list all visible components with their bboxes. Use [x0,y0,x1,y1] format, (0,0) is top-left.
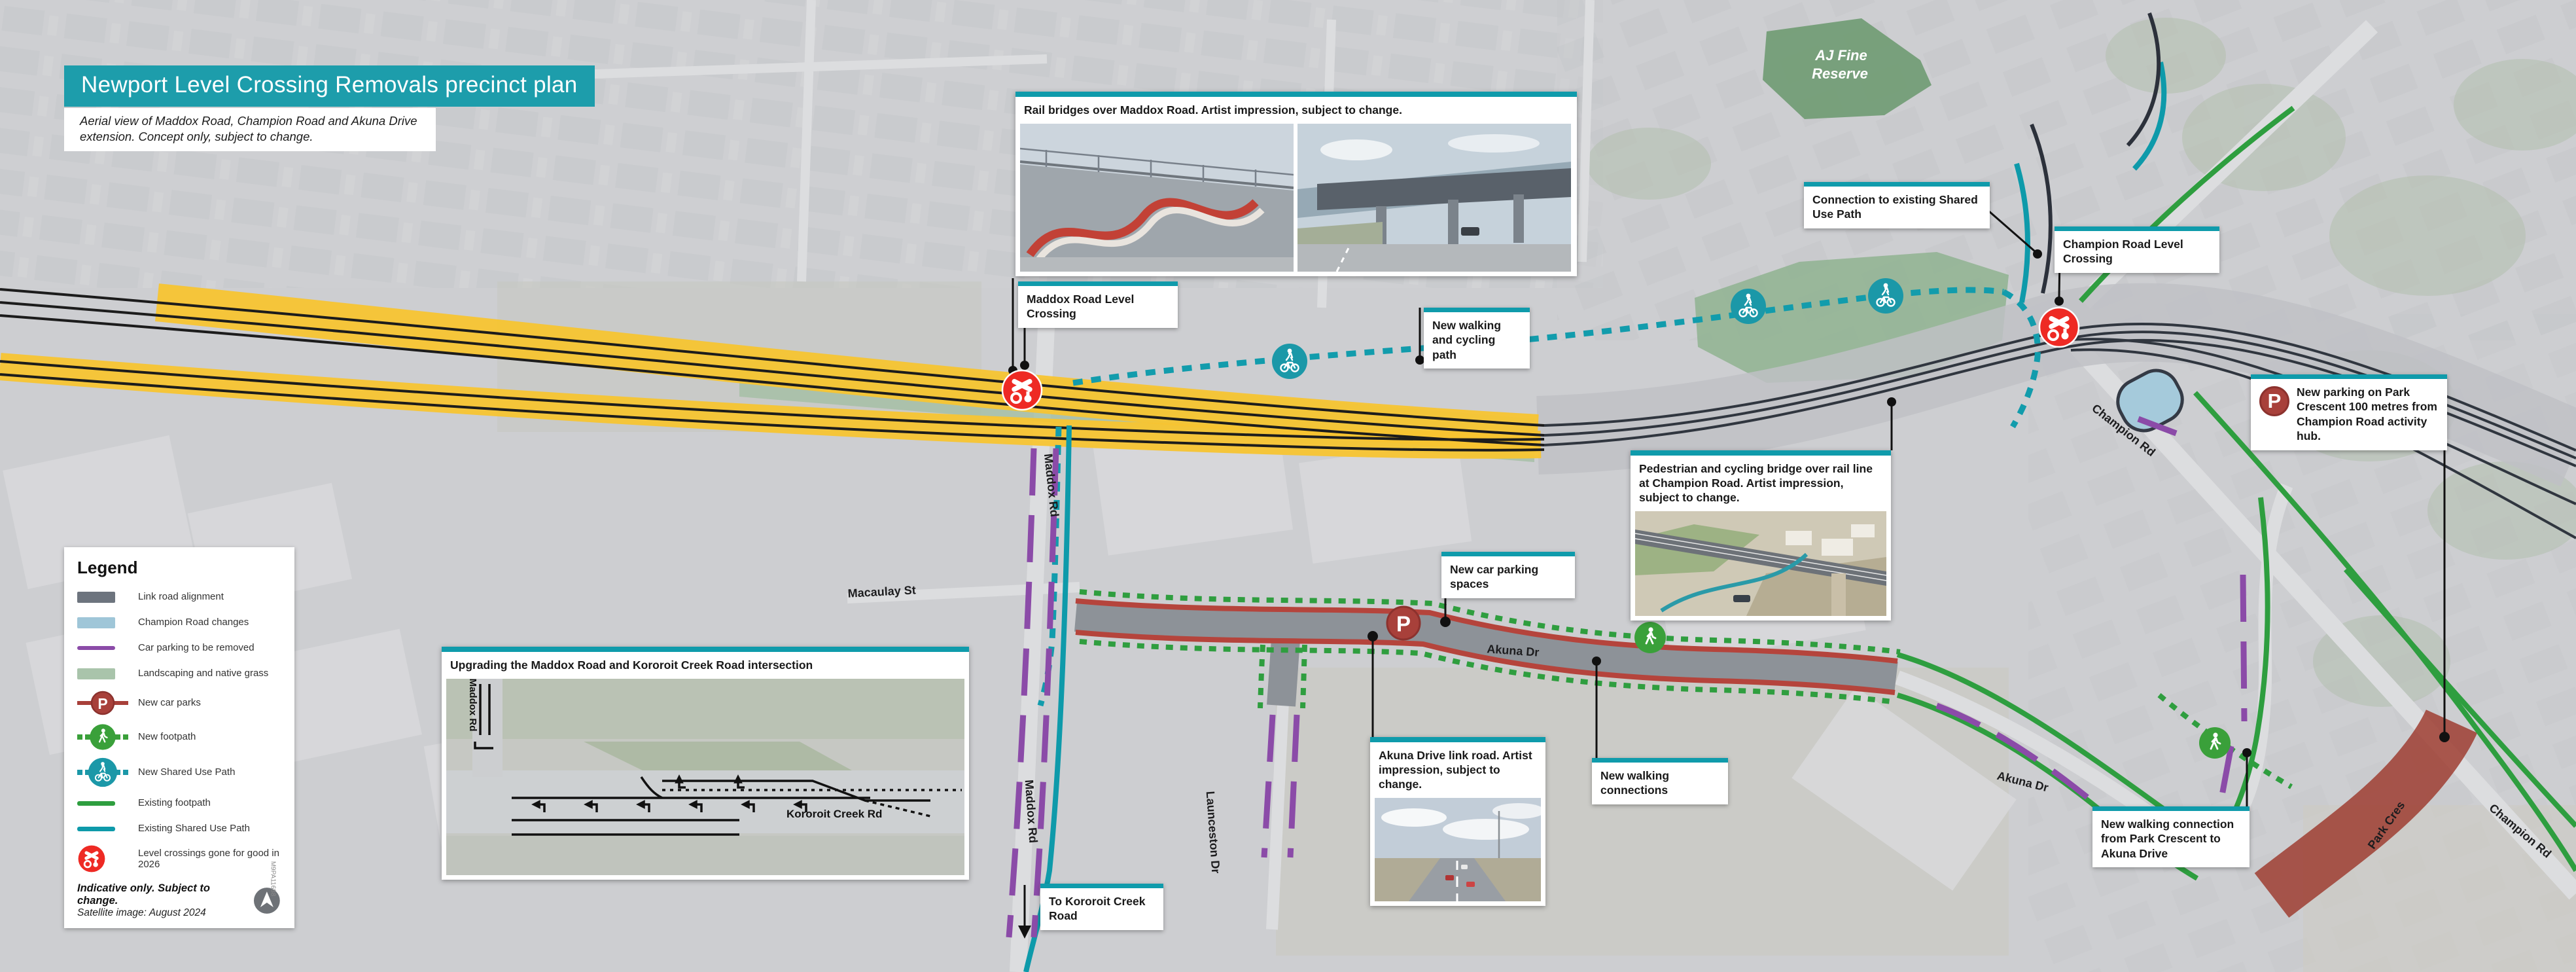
north-arrow-icon [253,886,281,915]
legend-item-new-footpath: New footpath [77,723,281,751]
legend-item-champion-changes: Champion Road changes [77,613,281,632]
car-spaces-callout: New car parking spaces [1441,552,1575,598]
walking-connections-callout: New walking connections [1592,758,1728,804]
shared-use-path-icon-1 [1272,344,1307,379]
legend-item-existing-sup: Existing Shared Use Path [77,819,281,838]
akuna-panel: Akuna Drive link road. Artist impression… [1370,737,1545,906]
satellite-note: Satellite image: August 2024 [77,907,253,919]
rail-bridge-photo-right [1297,124,1571,272]
legend-item-new-car-parks: P New car parks [77,689,281,717]
to-kororoit-callout: To Kororoit Creek Road [1040,884,1163,930]
shared-use-path-icon-2 [1731,289,1766,324]
ped-bridge-panel: Pedestrian and cycling bridge over rail … [1631,450,1891,621]
page-subtitle: Aerial view of Maddox Road, Champion Roa… [64,108,436,151]
reference-code: M9PA11688 [270,861,277,897]
akuna-photo [1375,798,1541,901]
precinct-plan-poster: P Maddox Rd Maddox Rd Macaulay St Launce… [0,0,2576,972]
akuna-title: Akuna Drive link road. Artist impression… [1375,742,1541,798]
legend-panel: Legend Link road alignment Champion Road… [64,547,294,928]
new-parking-text: New parking on Park Crescent 100 metres … [2297,385,2439,444]
legend-item-existing-footpath: Existing footpath [77,793,281,813]
landscaping-swatch [77,668,115,679]
legend-label: New car parks [138,697,201,708]
legend-label: Landscaping and native grass [138,668,268,679]
label-reserve-line1: AJ Fine [1814,47,1867,63]
new-parking-callout: P New parking on Park Crescent 100 metre… [2251,374,2447,450]
existing-footpath-line [77,801,115,806]
inset-label-maddox-rd: Maddox Rd [467,679,478,731]
new-footpath-icon [77,723,128,751]
legend-item-link-road: Link road alignment [77,587,281,607]
legend-label: Existing footpath [138,797,211,808]
level-crossing-icon-champion [2039,308,2079,347]
intersection-panel: Upgrading the Maddox Road and Kororoit C… [442,647,969,880]
link-road-swatch [77,592,115,603]
legend-label: New Shared Use Path [138,766,235,778]
walking-park-cres-callout: New walking connection from Park Crescen… [2092,806,2250,867]
legend-item-parking-removed: Car parking to be removed [77,638,281,658]
page-title: Newport Level Crossing Removals precinct… [64,65,595,107]
ped-bridge-photo [1635,511,1886,616]
champion-changes-swatch [77,617,115,628]
level-crossing-icon-maddox [1002,370,1042,410]
parking-removed-line [77,646,115,650]
footpath-icon-link-road [1634,622,1666,653]
label-reserve-line2: Reserve [1812,65,1868,82]
legend-label: Champion Road changes [138,617,249,628]
legend-label: New footpath [138,731,196,742]
legend-item-landscaping: Landscaping and native grass [77,664,281,683]
ped-bridge-title: Pedestrian and cycling bridge over rail … [1635,456,1886,511]
legend-label: Existing Shared Use Path [138,823,250,834]
existing-sup-line [77,827,115,831]
intersection-diagram: Maddox Rd Kororoit Creek Rd [446,679,964,875]
walking-cycling-callout: New walking and cycling path [1424,308,1530,369]
legend-label: Link road alignment [138,591,224,602]
connection-sup-callout: Connection to existing Shared Use Path [1804,182,1990,228]
inset-label-kororoit-creek-rd: Kororoit Creek Rd [786,808,882,820]
indicative-note: Indicative only. Subject to change. [77,882,253,907]
legend-item-level-crossings: Level crossings gone for good in 2026 [77,844,281,873]
intersection-title: Upgrading the Maddox Road and Kororoit C… [446,652,964,679]
new-shared-use-path-icon [77,757,128,787]
legend-label: Car parking to be removed [138,642,255,653]
footpath-icon-park-cres [2199,727,2231,759]
car-park-icon-map: P [1387,607,1420,639]
legend-item-new-sup: New Shared Use Path [77,757,281,787]
svg-text:P: P [97,695,107,712]
car-park-icon-callout: P [2259,386,2289,416]
car-park-icon: P [77,689,128,717]
legend-notes: Indicative only. Subject to change. Sate… [77,882,281,919]
legend-heading: Legend [77,558,281,578]
legend-label: Level crossings gone for good in 2026 [138,848,281,871]
rail-bridges-panel: Rail bridges over Maddox Road. Artist im… [1015,92,1577,276]
svg-text:P: P [1396,612,1411,636]
maddox-crossing-callout: Maddox Road Level Crossing [1018,281,1178,328]
shared-use-path-icon-3 [1868,278,1903,314]
rail-bridge-photo-left [1020,124,1294,272]
rail-bridges-title: Rail bridges over Maddox Road. Artist im… [1020,97,1572,124]
champion-crossing-callout: Champion Road Level Crossing [2055,226,2219,273]
level-crossing-icon [77,844,106,873]
